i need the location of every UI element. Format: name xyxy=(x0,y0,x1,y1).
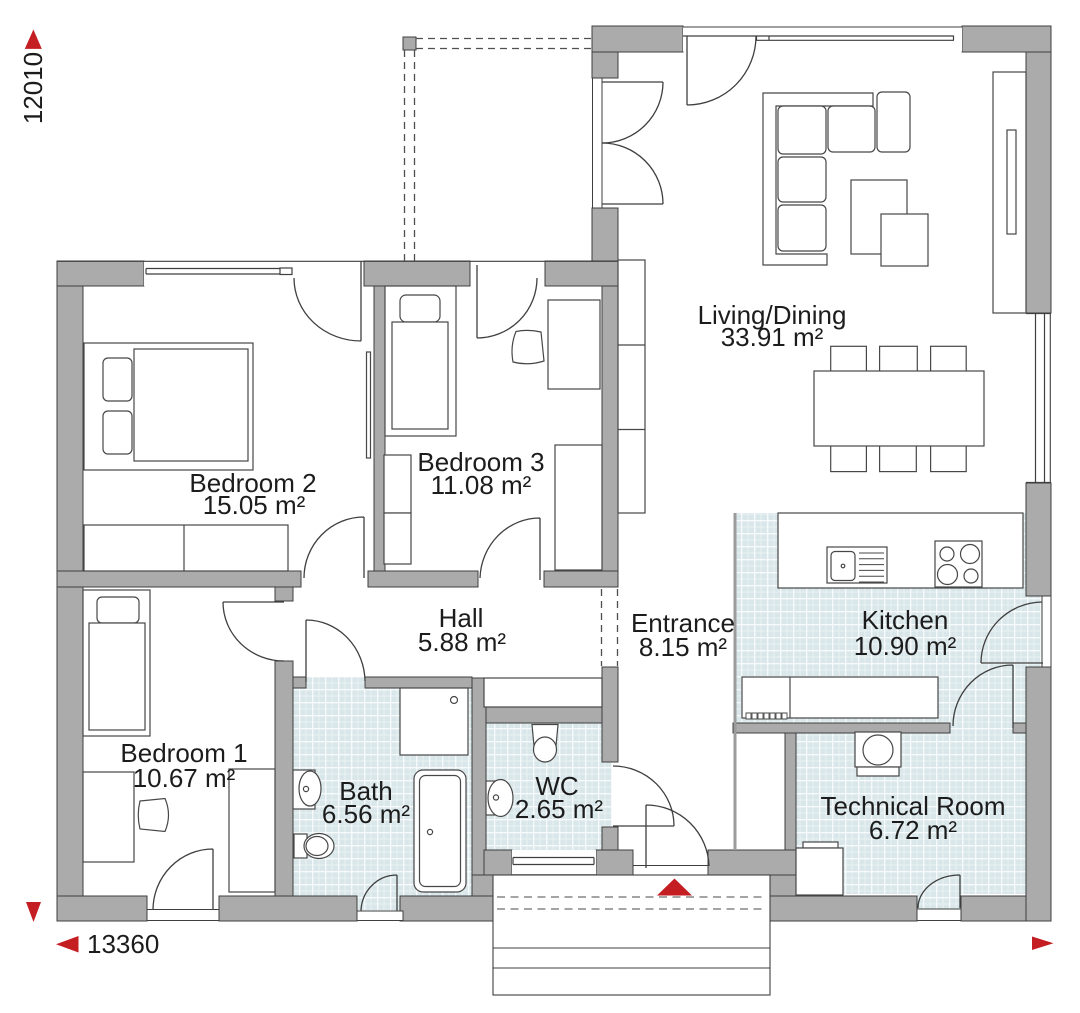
svg-text:12010: 12010 xyxy=(18,52,48,124)
svg-text:6.56 m²: 6.56 m² xyxy=(322,799,410,829)
svg-text:10.67 m²: 10.67 m² xyxy=(133,763,236,793)
svg-text:6.72 m²: 6.72 m² xyxy=(869,815,957,845)
svg-text:11.08 m²: 11.08 m² xyxy=(431,470,532,500)
svg-text:8.15 m²: 8.15 m² xyxy=(639,632,727,662)
svg-text:13360: 13360 xyxy=(87,929,159,959)
svg-text:10.90 m²: 10.90 m² xyxy=(854,631,957,661)
svg-text:15.05 m²: 15.05 m² xyxy=(203,490,306,520)
svg-text:5.88 m²: 5.88 m² xyxy=(418,627,506,657)
svg-text:2.65 m²: 2.65 m² xyxy=(515,794,603,824)
svg-text:33.91 m²: 33.91 m² xyxy=(721,322,824,352)
